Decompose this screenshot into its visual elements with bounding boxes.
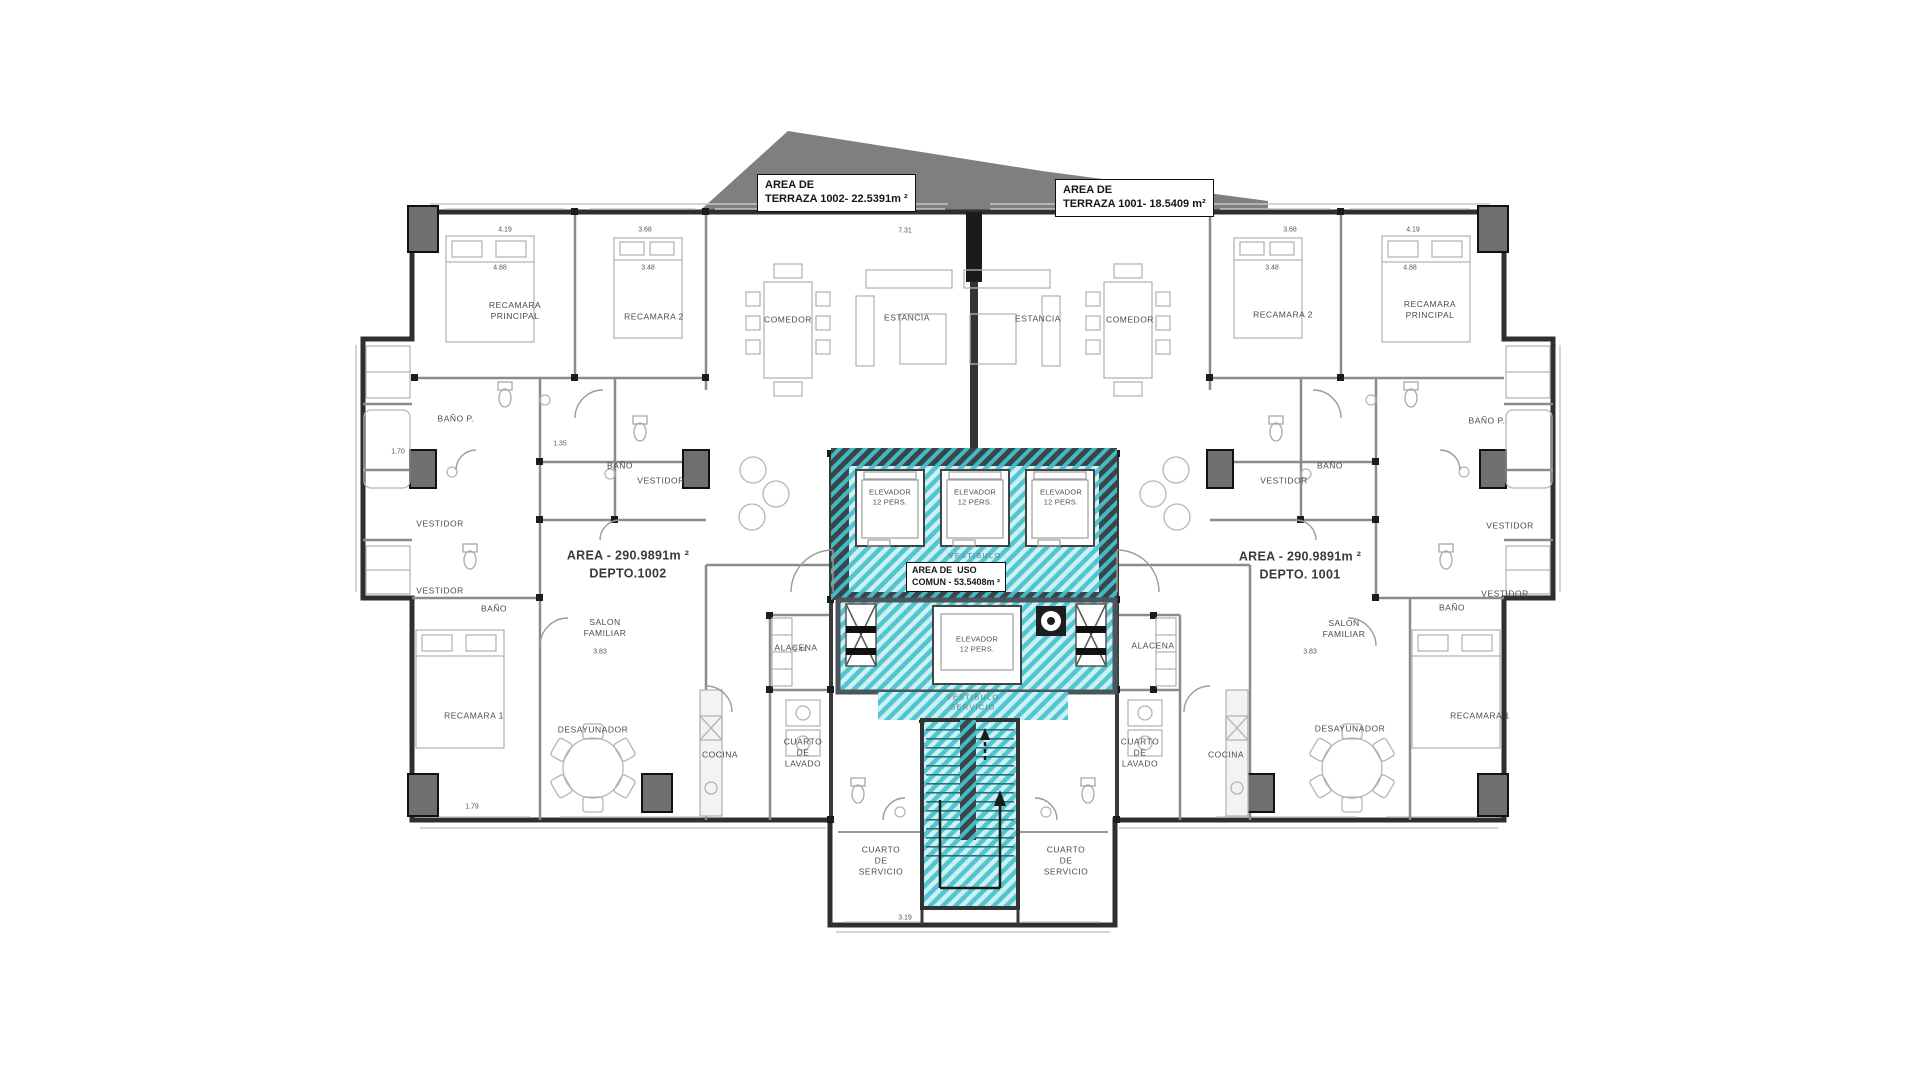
bano-1001: BAÑO (1317, 460, 1343, 471)
elevador-4-label: ELEVADOR 12 PERS. (956, 634, 998, 654)
dimension-text: 3.48 (1265, 265, 1279, 272)
elevador-3-label: ELEVADOR 12 PERS. (1040, 487, 1082, 507)
dimension-text: 4.88 (1403, 265, 1417, 272)
vestidor-1001-c: VESTIDOR (1481, 588, 1528, 599)
recamara-1-1002: RECAMARA 1 (444, 710, 504, 721)
dimension-text: 1.35 (553, 441, 567, 448)
terraza-1001-label: AREA DE TERRAZA 1001- 18.5409 m² (1055, 179, 1214, 217)
vestibulo-servicio-label: VESTIBULO SERVICIO (947, 692, 1000, 712)
bano-1001-b: BAÑO (1439, 602, 1465, 613)
vestibulo-label: VESTIBULO (949, 551, 1002, 561)
comedor-1001: COMEDOR (1106, 314, 1154, 325)
desayunador-1001: DESAYUNADOR (1315, 723, 1386, 734)
dimension-text: 3.68 (638, 227, 652, 234)
estancia-1002: ESTANCIA (884, 312, 930, 323)
bano-p-1002: BAÑO P. (438, 413, 475, 424)
dimension-text: 7.31 (898, 228, 912, 235)
depto-1002-area-label: AREA - 290.9891m ² DEPTO.1002 (567, 548, 689, 583)
area-uso-comun-label: AREA DE USO COMUN - 53.5408m ² (906, 562, 1006, 592)
estancia-1001: ESTANCIA (1015, 313, 1061, 324)
alacena-1001: ALACENA (1131, 640, 1174, 651)
dimension-text: 3.83 (593, 649, 607, 656)
salon-familiar-1001: SALON FAMILIAR (1323, 618, 1366, 640)
dimension-text: 3.68 (1283, 227, 1297, 234)
vestidor-1002-c: VESTIDOR (416, 585, 463, 596)
recamara-2-1001: RECAMARA 2 (1253, 309, 1313, 320)
dimension-text: 3.48 (641, 265, 655, 272)
vestidor-1001-a: VESTIDOR (1260, 475, 1307, 486)
vestidor-1002-a: VESTIDOR (416, 518, 463, 529)
salon-familiar-1002: SALON FAMILIAR (584, 617, 627, 639)
dimension-text: 1.70 (391, 449, 405, 456)
cuarto-lavado-1002: CUARTO DE LAVADO (784, 736, 823, 769)
recamara-2-1002: RECAMARA 2 (624, 311, 684, 322)
recamara-principal-1001: RECAMARA PRINCIPAL (1404, 299, 1456, 321)
bano-1002: BAÑO (607, 460, 633, 471)
elevador-2-label: ELEVADOR 12 PERS. (954, 487, 996, 507)
recamara-principal-1002: RECAMARA PRINCIPAL (489, 300, 541, 322)
dimension-text: 4.19 (498, 227, 512, 234)
labels-layer: AREA DE TERRAZA 1002- 22.5391m ²AREA DE … (0, 0, 1920, 1080)
terraza-1002-label: AREA DE TERRAZA 1002- 22.5391m ² (757, 174, 916, 212)
cuarto-lavado-1001: CUARTO DE LAVADO (1121, 736, 1160, 769)
floor-plan-page: AREA DE TERRAZA 1002- 22.5391m ²AREA DE … (0, 0, 1920, 1080)
bano-1002-b: BAÑO (481, 603, 507, 614)
vestidor-1001-b: VESTIDOR (1486, 520, 1533, 531)
cuarto-servicio-1001: CUARTO DE SERVICIO (1044, 844, 1088, 877)
cocina-1001: COCINA (1208, 749, 1244, 760)
dimension-text: 4.19 (1406, 227, 1420, 234)
dimension-text: 3.19 (898, 915, 912, 922)
elevador-1-label: ELEVADOR 12 PERS. (869, 487, 911, 507)
desayunador-1002: DESAYUNADOR (558, 724, 629, 735)
vestidor-1002-b: VESTIDOR (637, 475, 684, 486)
recamara-1-1001: RECAMARA 1 (1450, 710, 1510, 721)
dimension-text: 1.79 (465, 804, 479, 811)
dimension-text: 3.83 (1303, 649, 1317, 656)
dimension-text: 2.44 (793, 647, 807, 654)
cocina-1002: COCINA (702, 749, 738, 760)
cuarto-servicio-1002: CUARTO DE SERVICIO (859, 844, 903, 877)
comedor-1002: COMEDOR (764, 314, 812, 325)
dimension-text: 4.88 (493, 265, 507, 272)
depto-1001-area-label: AREA - 290.9891m ² DEPTO. 1001 (1239, 549, 1361, 584)
bano-p-1001: BAÑO P. (1469, 415, 1506, 426)
